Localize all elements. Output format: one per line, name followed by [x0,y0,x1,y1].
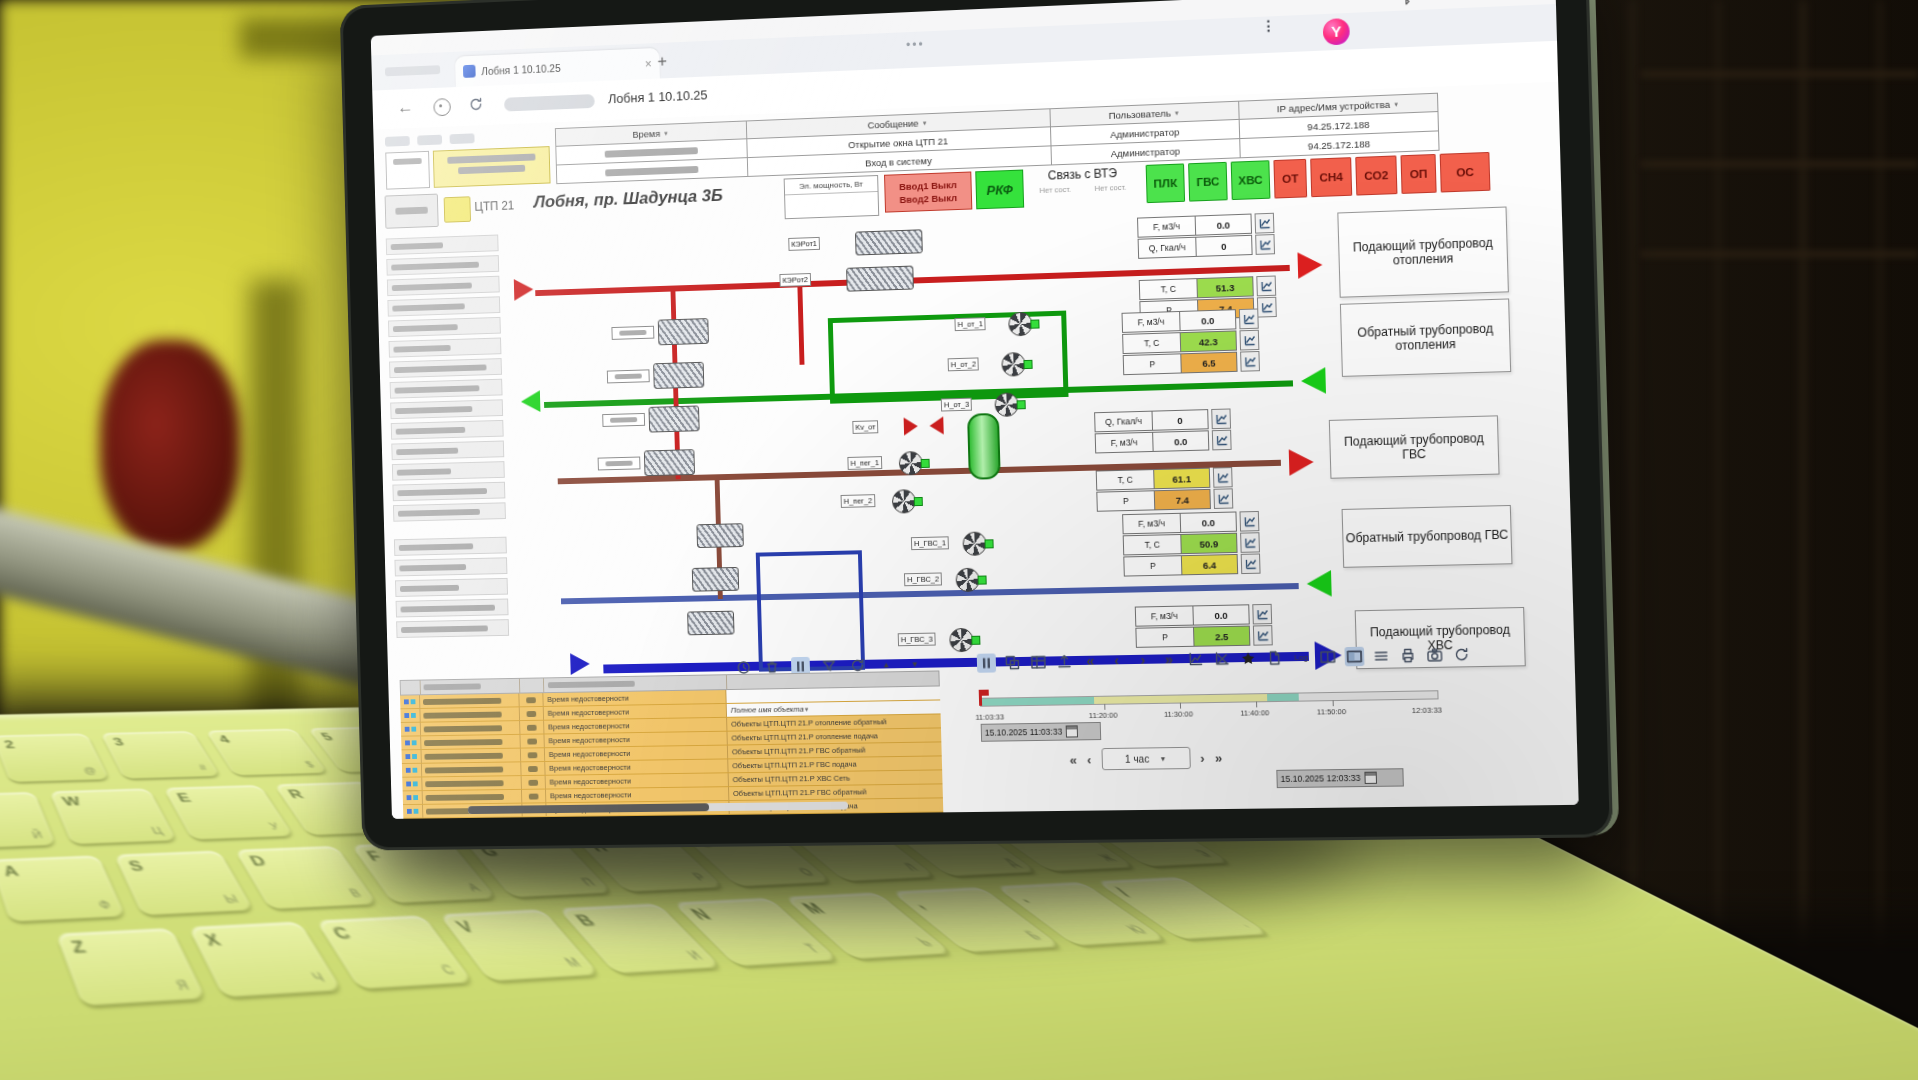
heat-exchanger[interactable] [696,523,743,548]
dhw-supply-values: Q, Гкал/ч0 F, м3/ч0.0 T, C61.1 P7.4 [1059,408,1231,413]
pump-label[interactable]: Н_пег_1 [847,456,882,470]
alarm-message: Время недостоверности [545,759,728,774]
calendar-icon[interactable] [1364,772,1377,784]
mnemoscheme: КЭРот1 КЭРот2 [505,198,1526,695]
session-box [385,151,430,190]
timeline-end-label: 12:03:33 [1412,705,1442,715]
snapshot-button[interactable] [1425,645,1445,665]
tab-title: Лобня 1 10.10.25 [481,58,639,77]
pipe-vertical-red2 [797,281,804,365]
highlighted-date-box [433,146,551,188]
key-E[interactable]: EУ [164,785,294,840]
timeline-start-label: 11:03:33 [975,712,1004,721]
sidebar-item[interactable] [386,255,499,276]
sidebar-item[interactable] [391,420,504,440]
sidebar-item[interactable] [387,276,500,296]
export-icon[interactable] [1055,652,1075,671]
url-prefix [504,94,595,111]
timeline-tick [1256,701,1257,707]
pause-button[interactable] [977,653,996,672]
cold-supply-in-arrow [570,653,590,675]
trend-timeline[interactable]: 11:03:33 11:20:0011:30:0011:40:0011:50:0… [980,690,1439,707]
pump-label[interactable]: Н_от_1 [954,317,986,331]
timeline-tick-label: 11:50:00 [1317,707,1347,717]
tab-close-button[interactable]: × [645,57,652,71]
key-Q[interactable]: QЙ [0,792,56,849]
scada-page: Время▼ Сообщение▼ Пользователь▼ IP адрес… [373,82,1578,819]
sidebar-item[interactable] [388,317,501,337]
chart-off-icon[interactable] [1212,649,1232,669]
menu-button[interactable] [385,194,439,229]
table-icon[interactable] [1029,652,1049,671]
timeline-tick-label: 11:40:00 [1240,708,1269,718]
alarm-message: Время недостоверности [545,746,728,761]
sidebar-item[interactable] [392,482,505,501]
site-info-icon[interactable] [433,98,451,116]
station-id: ЦТП 21 [474,199,514,214]
rack-shelf [1640,70,1918,78]
pump-label[interactable]: Н_от_2 [948,357,980,371]
rack-shelf [1640,160,1918,168]
log-button[interactable]: Log [1291,648,1311,668]
key-Z[interactable]: ZЯ [56,928,206,1006]
heat-exchanger[interactable] [658,318,709,345]
trend-open-button[interactable] [1213,488,1233,509]
pump-label[interactable]: Н_ГВС_3 [898,633,936,647]
end-date-box[interactable]: 15.10.2025 12:03:33 [1276,768,1404,788]
timeline-band [1267,694,1299,702]
status-button-ХВС[interactable]: ХВС [1231,160,1271,200]
trend-open-button[interactable] [1240,532,1260,553]
status-button-ОП[interactable]: ОП [1400,154,1436,194]
heat-exchanger[interactable] [692,567,739,592]
trend-open-button[interactable] [1239,511,1259,532]
trend-open-button[interactable] [1239,308,1259,329]
alarm-message: Время недостоверности [544,732,727,748]
key-D[interactable]: DВ [235,846,377,909]
pump-icon[interactable] [955,568,980,593]
favicon-icon [463,65,476,78]
heat-exchanger[interactable] [648,405,699,432]
back-icon[interactable]: ← [397,98,414,118]
rewind-fast-button[interactable]: « [1081,652,1101,671]
rack-shelf [1640,250,1918,258]
pump-icon[interactable] [962,531,987,556]
alarm-object-name: Объекты ЦТП.ЦТП 21.Р ГВС обратный [729,784,943,800]
trend-toolbar: «‹›»Log [977,645,1472,673]
heat-exchanger[interactable] [644,449,695,476]
heat-return-arrow [1301,367,1326,394]
equipment-label[interactable] [602,413,645,427]
red-pipe [100,340,240,550]
rkf-button[interactable]: РКФ [975,170,1024,210]
tablet-device: ᛒ 77 Лобня 1 10.10.25 × + ••• [340,0,1614,850]
trend-open-button[interactable] [1255,213,1275,234]
chart-scale-icon[interactable] [1186,650,1206,670]
timeline-tick-label: 11:30:00 [1164,709,1193,719]
dhw-return-arrow [1306,570,1331,597]
forward-button[interactable]: › [1133,651,1153,670]
equipment-label[interactable] [598,457,641,471]
alarm-table[interactable]: Время недостоверностиВремя недостовернос… [400,670,944,818]
print-button[interactable] [1398,646,1418,666]
rewind-button[interactable]: ‹ [1107,651,1127,670]
reload-icon[interactable] [468,96,485,117]
control-valve-icon[interactable] [904,417,918,435]
cold-loop [756,550,865,671]
period-select[interactable]: 1 час▼ [1101,747,1190,770]
pump-label[interactable]: Н_от_3 [941,398,973,412]
alarm-indicator [444,196,471,222]
equipment-label[interactable] [611,326,654,340]
timeline-band [981,697,1094,706]
status-button-ГВС[interactable]: ГВС [1188,162,1228,202]
pump-icon[interactable] [994,392,1019,417]
bookmark-star-icon[interactable] [1238,649,1258,669]
pipe-label: Обратный трубопровод ГВС [1342,505,1513,568]
scene-photo: 1!2@3#4$5%6^7&8*9(0)-_=+QЙWЦEУRКTЕYНUГIШ… [0,0,1918,1080]
status-button-СО2[interactable]: СО2 [1355,155,1397,195]
trend-open-button[interactable] [1213,467,1233,488]
timeline-tick [1105,704,1106,710]
equipment-label[interactable] [607,369,650,383]
key-3[interactable]: 3# [101,731,221,779]
pump-label[interactable]: Н_ГВС_1 [911,536,949,550]
status-button-ОТ[interactable]: ОТ [1273,159,1307,199]
trend-open-button[interactable] [1252,604,1272,625]
key-X[interactable]: XЧ [188,922,341,998]
split-view-button[interactable] [1318,647,1338,667]
heat-exchanger[interactable] [855,229,923,255]
pipe-label: Подающий трубопровод отопления [1337,206,1509,297]
sidebar-item[interactable] [386,235,499,256]
sidebar-item[interactable] [394,557,507,576]
station-title: Лобня, пр. Шадунца 3Б [534,186,724,213]
pipe-label: Подающий трубопровод ГВС [1329,415,1500,478]
trend-open-button[interactable] [1212,430,1232,451]
status-button-ОС[interactable]: ОС [1440,152,1491,193]
tablet-screen: ᛒ 77 Лобня 1 10.10.25 × + ••• [371,0,1579,819]
sidebar-item[interactable] [390,379,503,399]
sidebar-item[interactable] [391,441,504,461]
valve-label[interactable]: Kv_от [852,420,878,434]
sidebar-item[interactable] [389,337,502,357]
timeline-tick-label: 11:20:00 [1089,711,1118,721]
pump-label[interactable]: Н_ГВС_2 [904,572,942,586]
trend-open-button[interactable] [1241,553,1261,574]
window-controls [385,65,440,76]
legend-list-button[interactable] [1371,646,1391,666]
key-2[interactable]: 2@ [0,734,109,782]
sidebar-item[interactable] [390,399,503,419]
pipe-dhw-return [561,583,1299,604]
start-date-box[interactable]: 15.10.2025 11:03:33 [981,722,1102,742]
address-title: Лобня 1 10.10.25 [608,87,708,106]
bluetooth-icon: ᛒ [1404,0,1411,5]
sidebar-item[interactable] [393,502,506,521]
sidebar-item[interactable] [392,461,505,481]
layers-icon[interactable] [1003,653,1022,672]
timeline-tick [1333,700,1334,706]
equipment-label[interactable]: КЭРот1 [788,237,820,251]
trend-open-button[interactable] [1257,297,1277,318]
timeline-tick [1180,703,1181,709]
expansion-tank [967,413,1001,480]
period-forward-fast-button[interactable]: » [1215,750,1223,765]
status-button-ПЛК[interactable]: ПЛК [1146,163,1185,203]
key-A[interactable]: AФ [0,855,125,921]
cold-supply-values: F, м3/ч0.0 P2.5 [1100,604,1272,607]
dhw-supply-arrow [1289,449,1314,476]
new-tab-button[interactable]: + [657,52,667,72]
sidebar-item[interactable] [395,578,508,597]
heat-supply-values: F, м3/ч0.0 Q, Гкал/ч0 T, C51.3 P7.4 [1102,213,1274,219]
dhw-return-values: F, м3/ч0.0 T, C50.9 P6.4 [1087,511,1259,515]
calendar-icon[interactable] [1066,725,1078,737]
camera-dots: ••• [906,37,925,52]
key-W[interactable]: WЦ [49,788,176,844]
heat-exchanger[interactable] [687,611,734,636]
login-panel [385,133,475,146]
refresh-button[interactable] [1452,645,1472,665]
document-icon[interactable] [1265,648,1285,668]
period-back-button[interactable]: ‹ [1087,752,1092,767]
heat-supply-in-arrow [514,278,534,300]
vte-link-status: Связь с ВТЭ Нет сост.Нет сост. [1027,165,1138,205]
trend-open-button[interactable] [1255,234,1275,255]
heat-return-out-arrow [521,390,541,412]
period-back-fast-button[interactable]: « [1069,752,1077,767]
trend-open-button[interactable] [1211,408,1231,429]
pump-label[interactable]: Н_пег_2 [841,494,876,508]
status-button-СН4[interactable]: СН4 [1310,157,1352,197]
heat-exchanger[interactable] [846,266,914,292]
sidebar-item[interactable] [387,296,500,316]
alarm-message: Время недостоверности [546,773,729,788]
sidebar-item[interactable] [389,358,502,378]
trend-open-button[interactable] [1256,275,1276,296]
key-S[interactable]: SЫ [114,851,253,916]
heat-supply-arrow [1297,252,1322,279]
menu-kebab-icon[interactable]: ⋮ [1261,23,1275,29]
object-tree-sidebar[interactable] [386,235,509,642]
inputs-status-button[interactable]: Ввод1 ВыклВвод2 Выкл [884,171,972,212]
key-4[interactable]: 4$ [206,729,328,776]
sidebar-item[interactable] [396,599,509,618]
period-forward-button[interactable]: › [1200,750,1205,765]
timeline-cursor[interactable] [979,690,982,706]
single-view-button[interactable] [1344,647,1364,667]
sidebar-item[interactable] [394,537,507,556]
power-box: Эл. мощность, Вт [784,175,880,219]
period-navigation: « ‹ 1 час▼ › » [1069,746,1222,770]
sidebar-item[interactable] [396,619,509,638]
pipe-label: Обратный трубопровод отопления [1340,298,1511,376]
trend-open-button[interactable] [1239,330,1259,351]
trend-panel: «‹›»Log 11:03:33 11:20:0011:30:0011:40:0… [971,637,1463,812]
yandex-logo[interactable]: Y [1323,18,1350,46]
heat-exchanger[interactable] [653,362,704,389]
pump-icon[interactable] [892,489,916,514]
equipment-label[interactable]: КЭРот2 [779,273,811,287]
trend-open-button[interactable] [1240,351,1260,372]
forward-fast-button[interactable]: » [1159,650,1179,670]
alarm-message: Время недостоверности [546,787,729,802]
